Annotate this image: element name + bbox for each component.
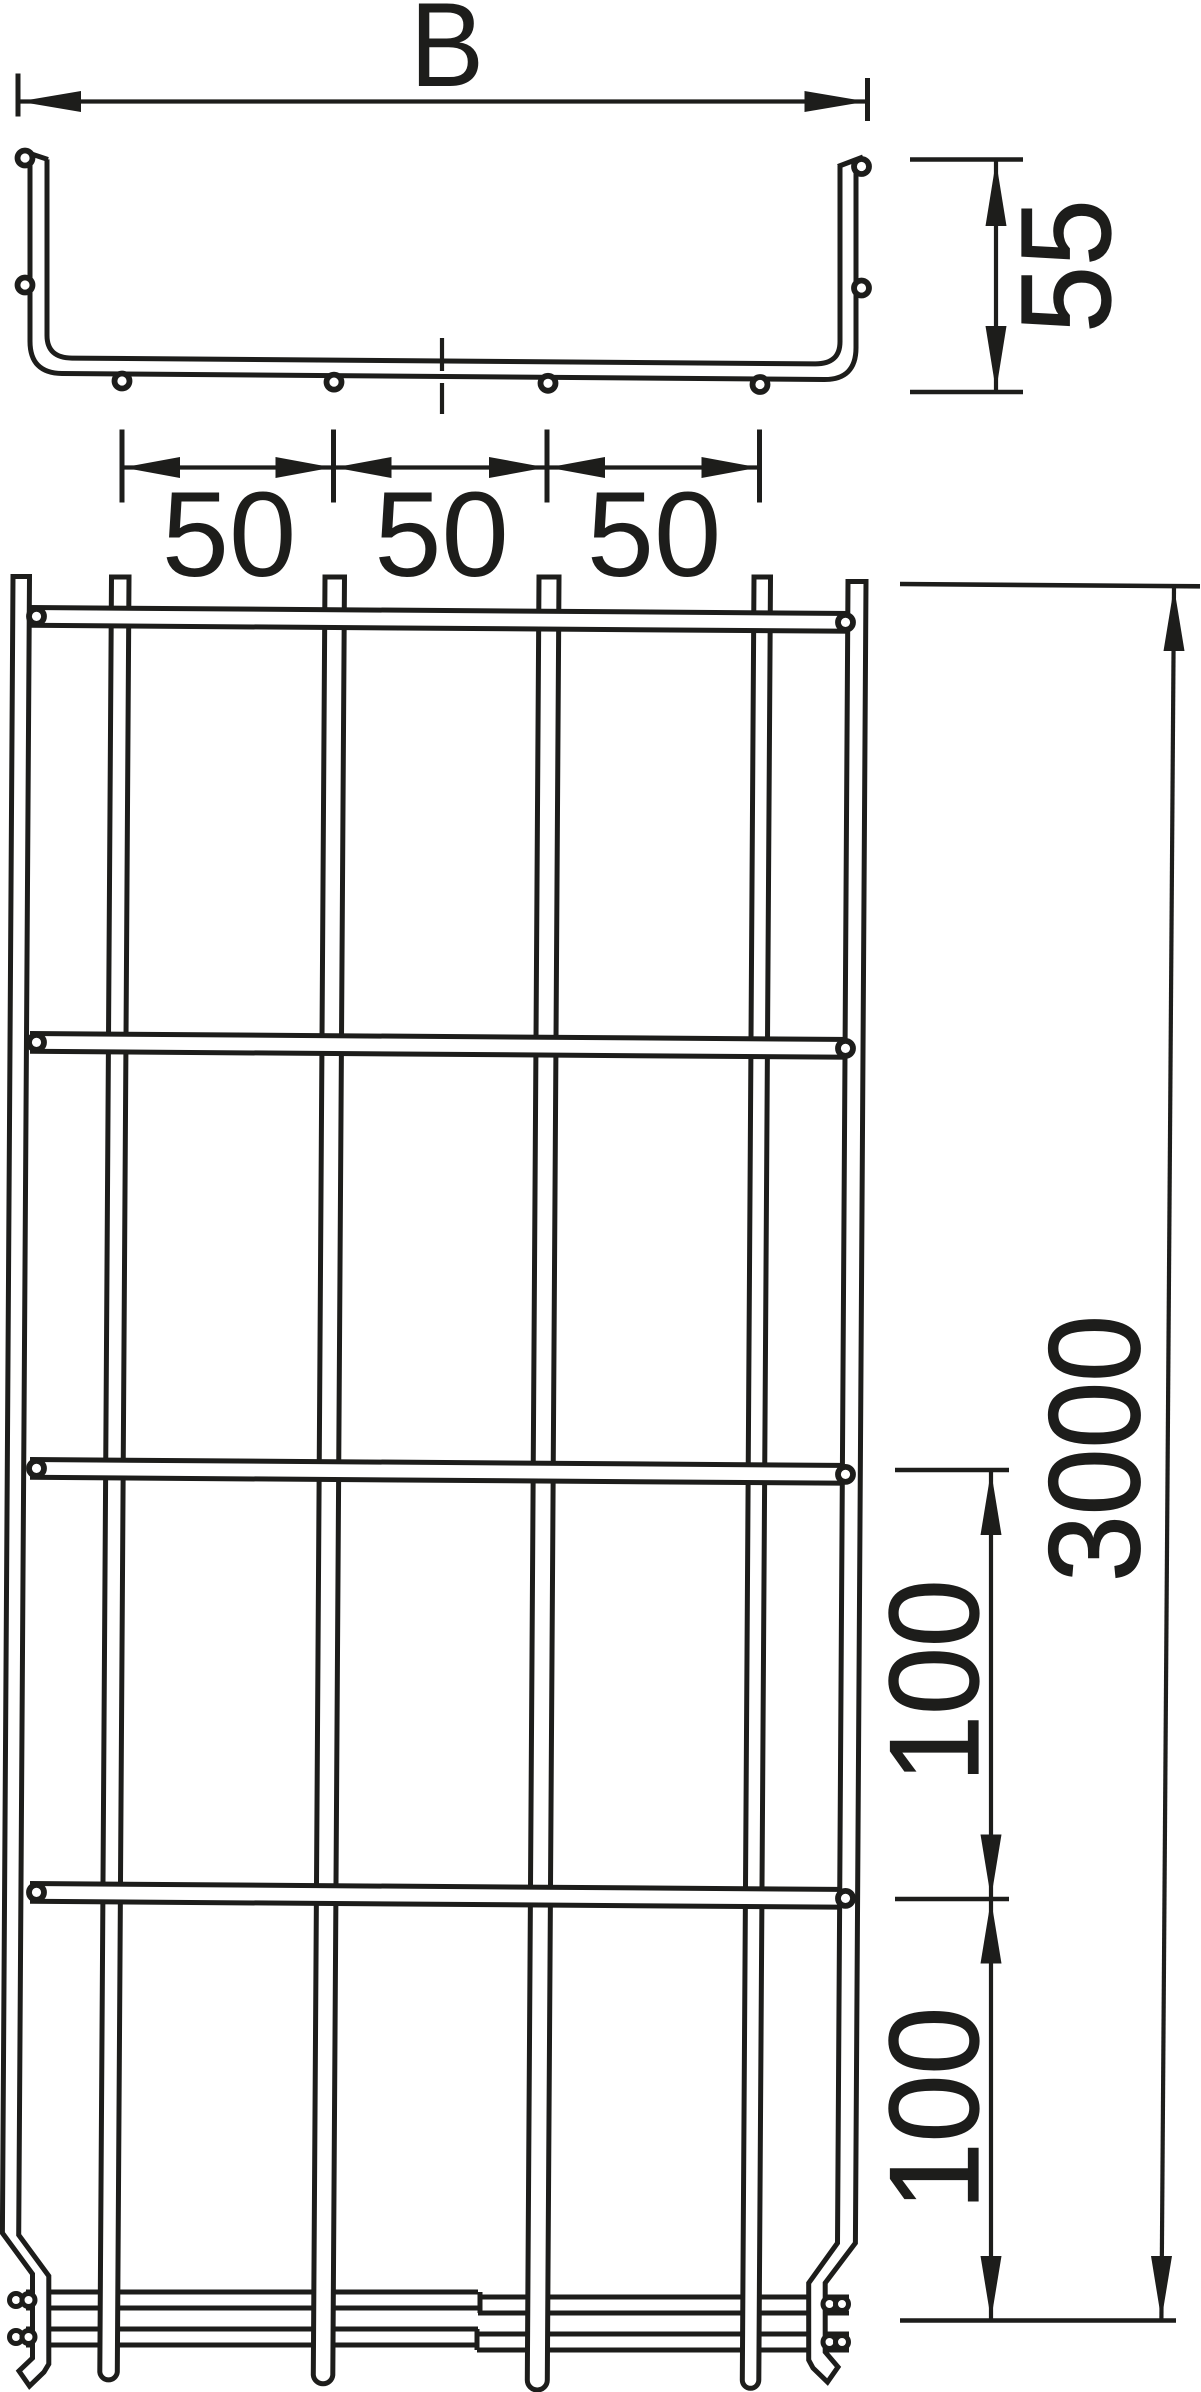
svg-text:50: 50: [587, 466, 722, 602]
svg-text:100: 100: [864, 1579, 1006, 1783]
svg-text:50: 50: [162, 466, 297, 602]
svg-text:100: 100: [864, 2007, 1006, 2211]
svg-text:55: 55: [996, 199, 1138, 332]
svg-text:B: B: [410, 0, 484, 112]
svg-text:3000: 3000: [1023, 1315, 1167, 1582]
svg-text:50: 50: [374, 466, 509, 602]
